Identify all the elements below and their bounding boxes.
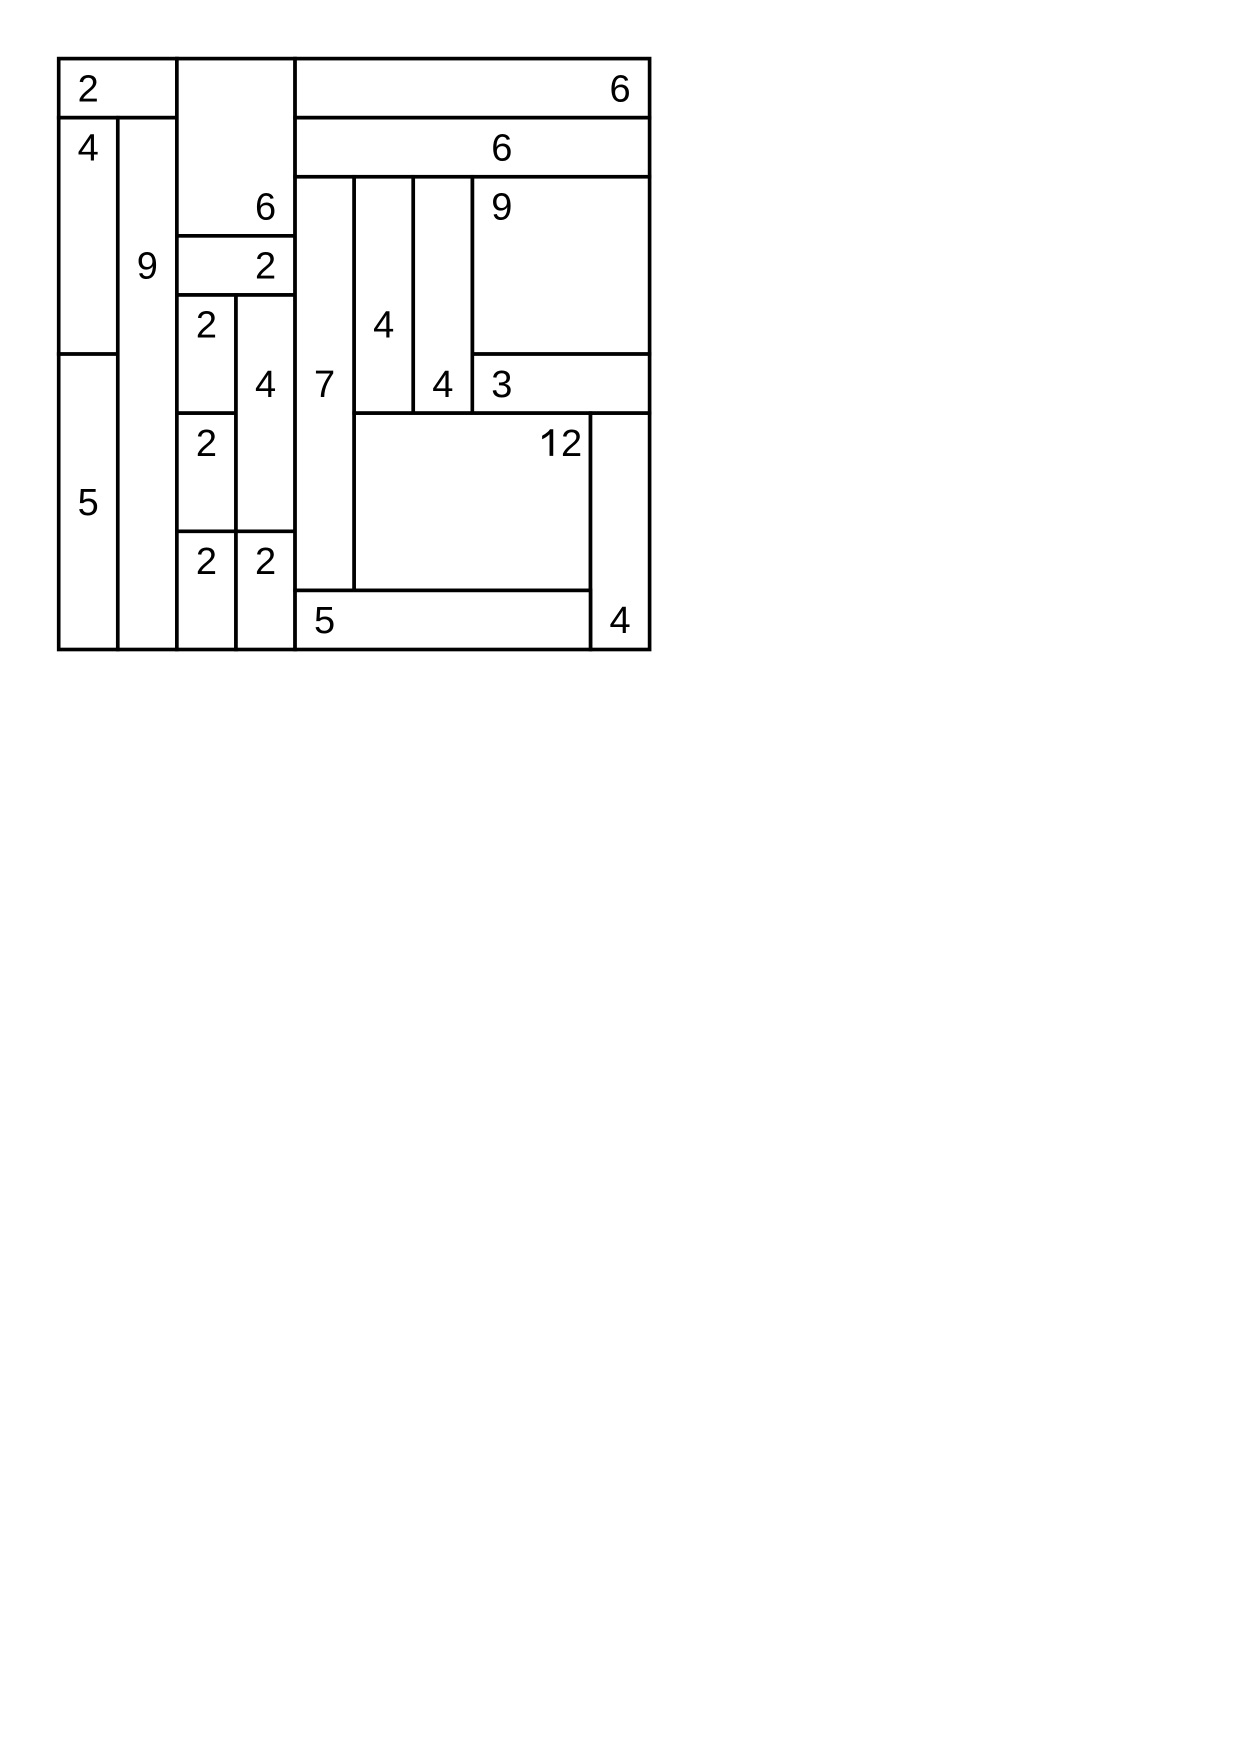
svg-text:2: 2 [196,305,217,347]
svg-text:9: 9 [137,246,158,288]
svg-text:4: 4 [373,305,394,347]
svg-text:2: 2 [255,541,276,583]
svg-text:2: 2 [196,541,217,583]
svg-text:3: 3 [491,364,512,406]
svg-text:6: 6 [491,127,512,169]
svg-text:4: 4 [432,364,453,406]
svg-text:4: 4 [609,600,630,642]
svg-text:5: 5 [314,600,335,642]
svg-text:5: 5 [78,482,99,524]
svg-text:6: 6 [255,187,276,229]
svg-text:4: 4 [78,127,99,169]
svg-text:6: 6 [609,68,630,110]
svg-text:2: 2 [78,68,99,110]
svg-text:7: 7 [314,364,335,406]
svg-text:2: 2 [255,246,276,288]
svg-text:2: 2 [561,423,582,465]
svg-text:2: 2 [196,423,217,465]
svg-text:4: 4 [255,364,276,406]
svg-text:9: 9 [491,187,512,229]
